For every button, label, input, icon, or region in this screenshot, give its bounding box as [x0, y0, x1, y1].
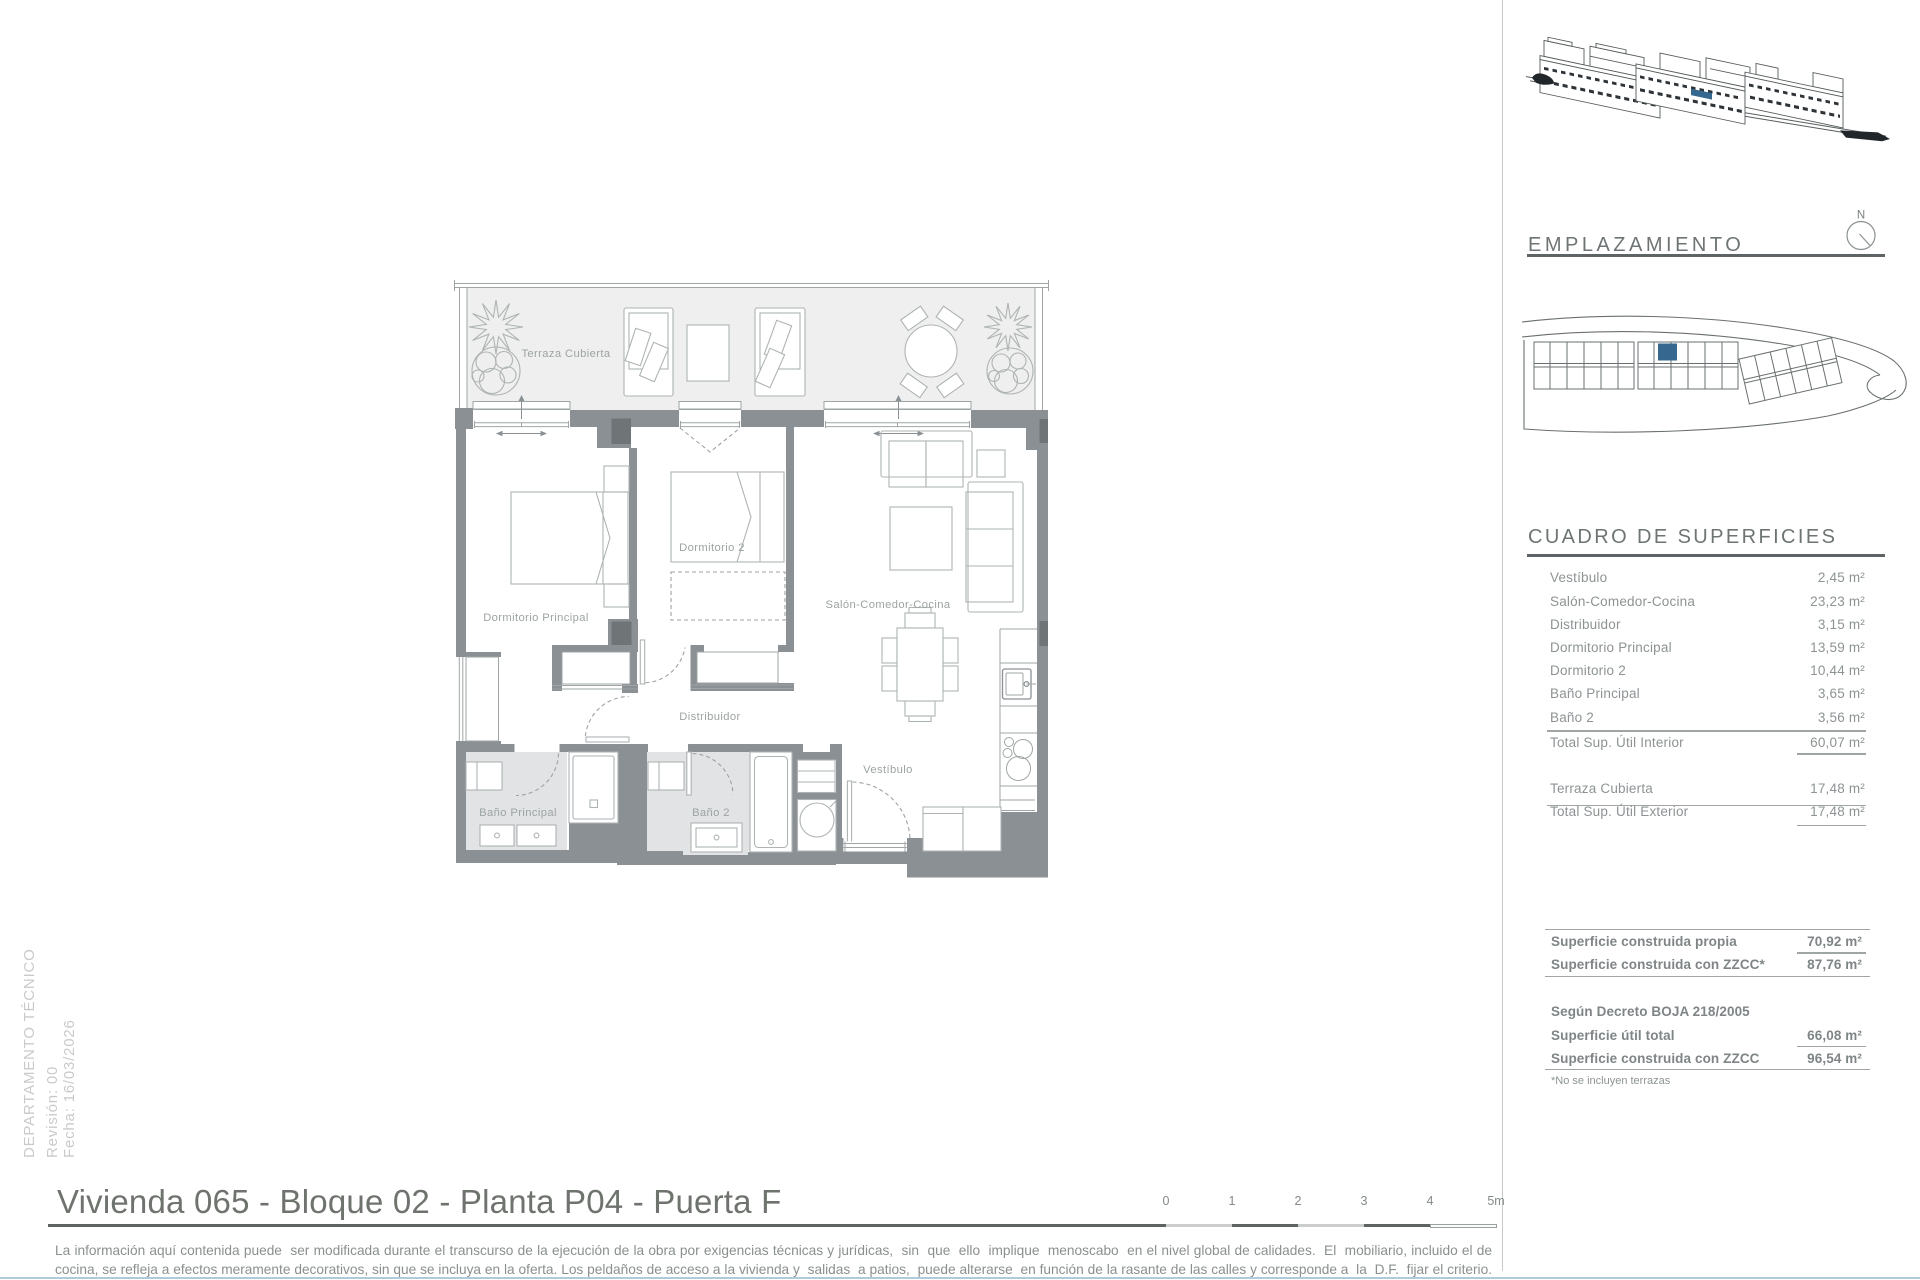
svg-text:Baño Principal: Baño Principal	[479, 807, 557, 819]
svg-text:Distribuidor: Distribuidor	[679, 711, 740, 723]
svg-text:Dormitorio 2: Dormitorio 2	[679, 542, 745, 554]
svg-text:Vestíbulo: Vestíbulo	[863, 764, 913, 776]
svg-text:Baño 2: Baño 2	[692, 807, 730, 819]
svg-text:Dormitorio Principal: Dormitorio Principal	[483, 612, 589, 624]
svg-text:Salón-Comedor-Cocina: Salón-Comedor-Cocina	[826, 599, 951, 611]
svg-text:Terraza Cubierta: Terraza Cubierta	[521, 348, 610, 360]
svg-text:N: N	[1857, 210, 1865, 222]
